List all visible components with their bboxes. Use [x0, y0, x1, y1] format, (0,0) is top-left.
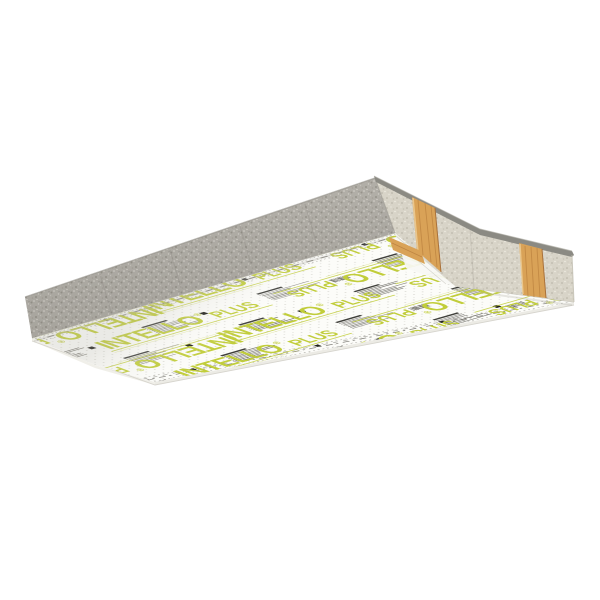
registered-mark-text: ®: [564, 179, 578, 184]
brand-name-text: INTELLO: [460, 180, 586, 218]
panel-illustration: INTELLO®PLUSINTELLO®PLUSINTELLO®PLUSINTE…: [0, 0, 600, 600]
brand-logo: INTELLO®PLUS: [458, 162, 600, 219]
wood-stud-right: [519, 243, 546, 298]
variant-text: PLUS: [151, 393, 213, 412]
brand-logo: INTELLO®PLUS: [538, 190, 600, 247]
registered-mark-text: ®: [521, 217, 535, 222]
registered-mark-text: ®: [212, 396, 226, 401]
variant-text: PLUS: [534, 205, 596, 224]
product-photo-stage: INTELLO®PLUSINTELLO®PLUSINTELLO®PLUSINTE…: [0, 0, 600, 600]
brand-name-text: INTELLO: [539, 208, 600, 246]
variant-text: PLUS: [577, 167, 600, 186]
